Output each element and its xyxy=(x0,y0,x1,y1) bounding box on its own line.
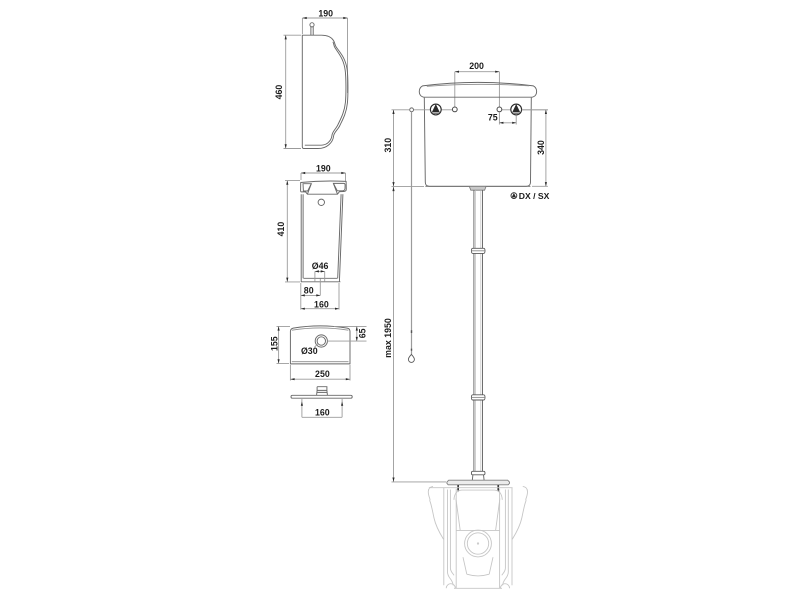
svg-text:410: 410 xyxy=(276,222,286,237)
svg-text:80: 80 xyxy=(304,286,314,296)
svg-text:max 1950: max 1950 xyxy=(383,318,393,358)
svg-text:310: 310 xyxy=(383,138,393,153)
svg-text:Ø30: Ø30 xyxy=(301,346,318,356)
svg-text:250: 250 xyxy=(315,369,330,379)
svg-text:200: 200 xyxy=(469,61,484,71)
svg-text:160: 160 xyxy=(315,408,330,418)
svg-text:Ø46: Ø46 xyxy=(312,261,329,271)
svg-text:DX / SX: DX / SX xyxy=(519,191,550,201)
svg-text:340: 340 xyxy=(536,140,546,155)
svg-text:460: 460 xyxy=(274,85,284,100)
svg-text:190: 190 xyxy=(316,163,331,173)
svg-text:160: 160 xyxy=(314,300,329,310)
svg-text:155: 155 xyxy=(269,336,279,351)
svg-text:190: 190 xyxy=(318,8,333,18)
svg-text:65: 65 xyxy=(358,328,368,338)
svg-text:75: 75 xyxy=(488,112,498,122)
